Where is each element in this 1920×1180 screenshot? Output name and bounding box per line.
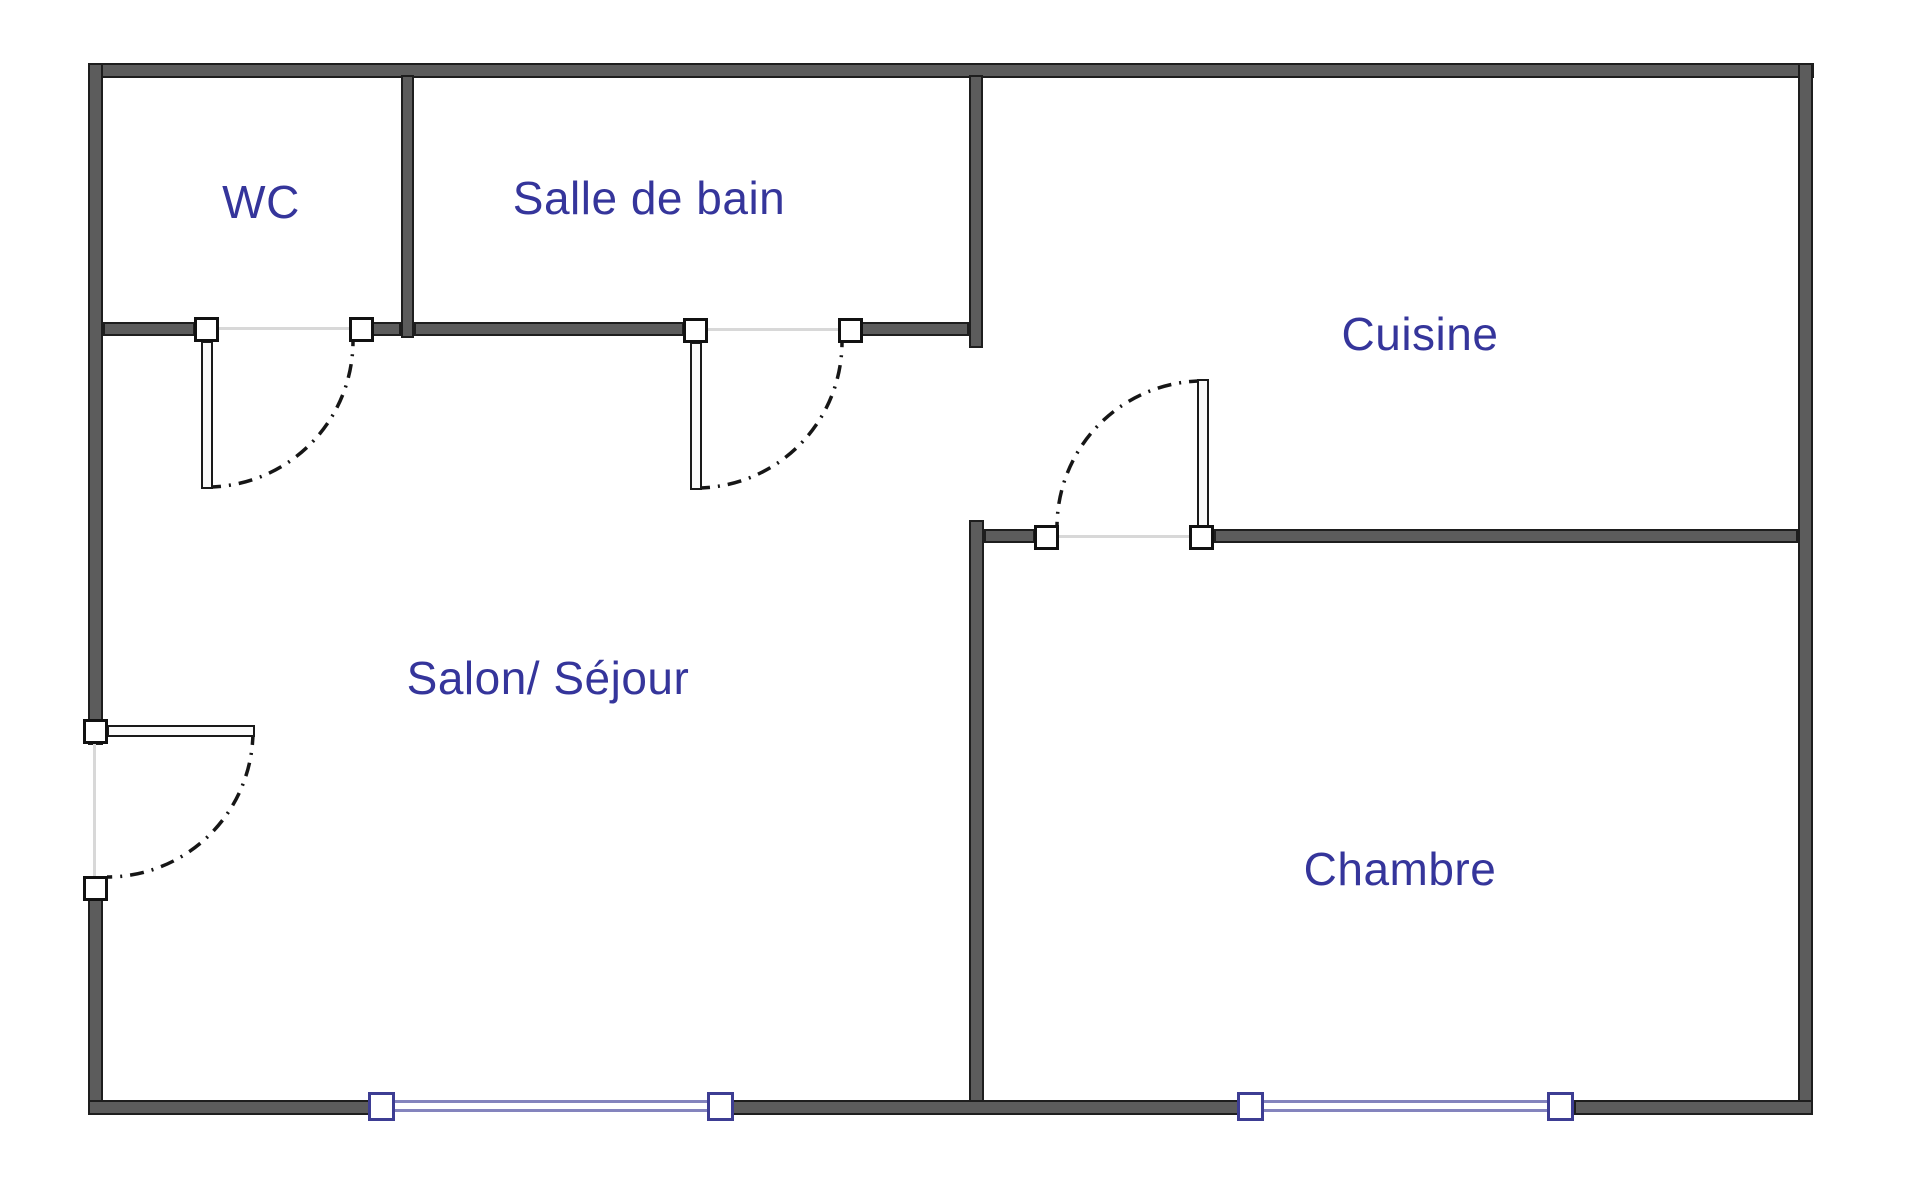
wall-sdb-south-right: [861, 322, 969, 336]
salon-window-glazing: [394, 1100, 709, 1112]
sdb-door-jamb-right: [838, 318, 863, 343]
room-label-wc: WC: [222, 175, 300, 229]
room-label-chambre: Chambre: [1304, 842, 1497, 896]
wall-sdb-south-left: [414, 322, 684, 336]
sdb-door-swing-arc: [696, 342, 842, 488]
wall-outer-bottom-left: [88, 1100, 372, 1115]
cuisine-door-jamb-left: [1034, 525, 1059, 550]
wall-wc-south-left: [103, 322, 195, 336]
wall-outer-bottom-right: [1574, 1100, 1813, 1115]
room-label-cuisine: Cuisine: [1342, 307, 1499, 361]
cuisine-door-swing-arc: [1057, 381, 1203, 527]
door-opening-line-sdb: [708, 328, 838, 331]
salon-window-frame-right: [707, 1092, 734, 1121]
floor-plan: WC Salle de bain Cuisine Salon/ Séjour C…: [0, 0, 1920, 1180]
room-label-salle-de-bain: Salle de bain: [513, 171, 785, 225]
wc-door-jamb-left: [194, 317, 219, 342]
door-opening-line-entry: [93, 744, 96, 876]
salon-window-frame-left: [368, 1092, 395, 1121]
wall-outer-top: [88, 63, 1814, 78]
wc-door-leaf: [201, 341, 213, 489]
room-label-salon-sejour: Salon/ Séjour: [407, 651, 690, 705]
sdb-door-leaf: [690, 342, 702, 490]
cuisine-door-leaf: [1197, 379, 1209, 527]
sdb-door-jamb-left: [683, 318, 708, 343]
wall-outer-left-lower: [88, 876, 103, 1115]
entry-door-jamb-bottom: [83, 876, 108, 901]
entry-door-swing-arc: [107, 731, 253, 877]
wall-cuisine-chambre-right: [1214, 529, 1798, 543]
wall-salon-chambre-divider: [969, 520, 984, 1102]
cuisine-door-jamb-right: [1189, 525, 1214, 550]
chambre-window-glazing: [1264, 1100, 1549, 1112]
wall-outer-bottom-middle: [731, 1100, 1241, 1115]
wall-outer-left-upper: [88, 63, 103, 745]
entry-door-jamb-top: [83, 719, 108, 744]
wall-sdb-cuisine-divider: [969, 75, 983, 348]
chambre-window-frame-left: [1237, 1092, 1264, 1121]
wall-outer-right: [1798, 63, 1813, 1115]
door-opening-line-cuisine: [1059, 535, 1189, 538]
chambre-window-frame-right: [1547, 1092, 1574, 1121]
entry-door-leaf: [107, 725, 255, 737]
wall-cuisine-chambre-left: [984, 529, 1035, 543]
wc-door-swing-arc: [207, 341, 353, 487]
wall-wc-south-right: [372, 322, 401, 336]
wall-wc-sdb-divider: [401, 75, 414, 338]
door-opening-line-wc: [219, 327, 349, 330]
wc-door-jamb-right: [349, 317, 374, 342]
